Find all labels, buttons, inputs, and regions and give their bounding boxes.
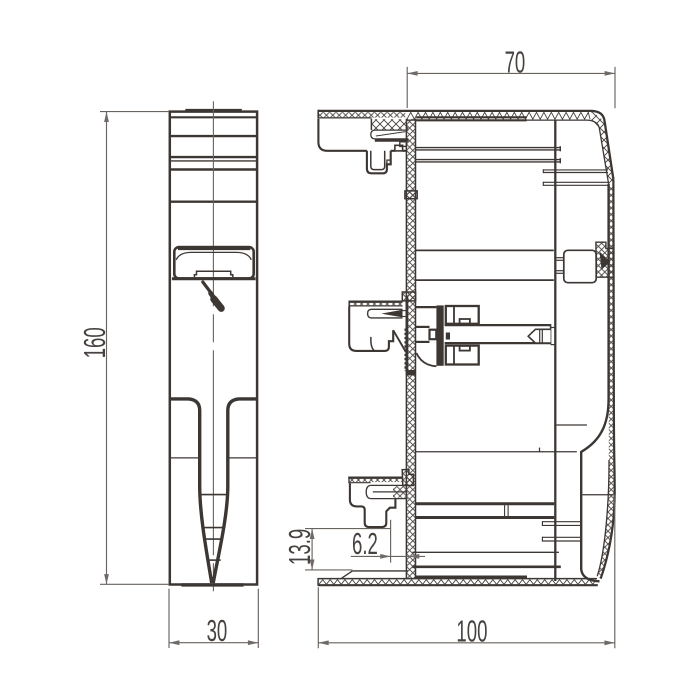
svg-text:13.9: 13.9 <box>283 529 317 565</box>
svg-text:70: 70 <box>505 46 526 80</box>
svg-text:160: 160 <box>78 327 112 358</box>
svg-text:100: 100 <box>456 615 487 649</box>
svg-text:6.2: 6.2 <box>352 527 378 561</box>
svg-text:30: 30 <box>207 615 228 649</box>
